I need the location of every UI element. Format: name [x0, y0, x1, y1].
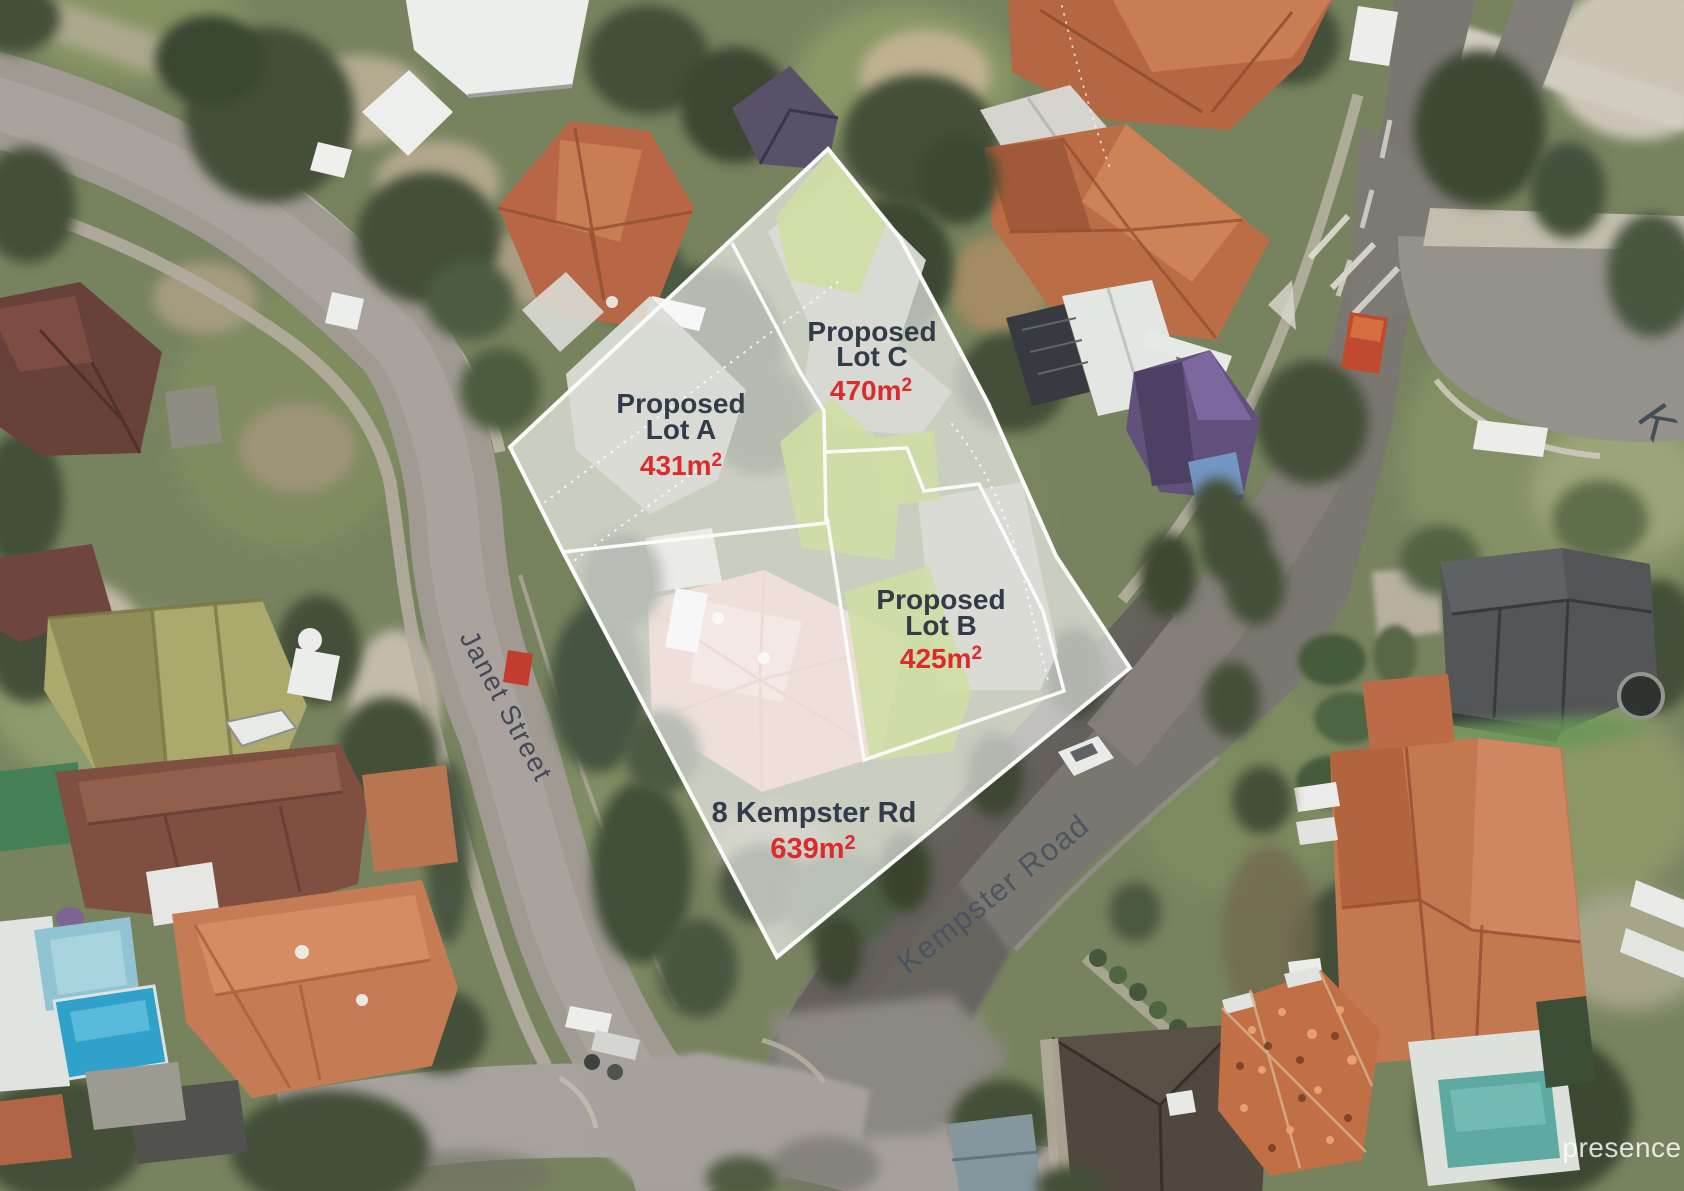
svg-text:425m2: 425m2: [900, 643, 982, 674]
svg-text:Lot B: Lot B: [905, 610, 977, 641]
svg-text:470m2: 470m2: [830, 375, 912, 406]
svg-text:Lot C: Lot C: [836, 341, 908, 372]
svg-text:Lot A: Lot A: [646, 414, 717, 445]
svg-text:639m2: 639m2: [770, 832, 855, 865]
svg-text:presence: presence: [1562, 1132, 1681, 1163]
svg-text:431m2: 431m2: [640, 450, 722, 481]
svg-text:8 Kempster Rd: 8 Kempster Rd: [712, 797, 917, 829]
